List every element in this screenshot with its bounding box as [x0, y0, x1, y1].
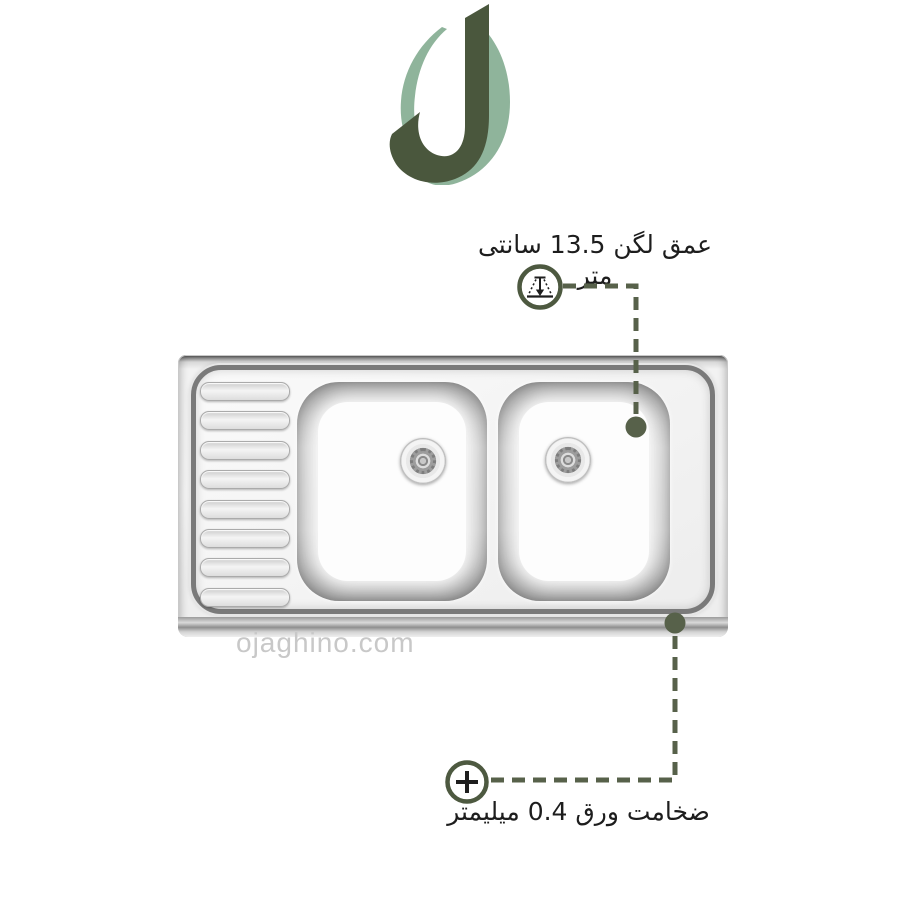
thickness-annotation-label: ضخامت ورق 0.4 میلیمتر [436, 796, 721, 827]
left-drain [400, 438, 446, 484]
brand-logo-icon [382, 3, 517, 185]
depth-annotation-label: عمق لگن 13.5 سانتی متر [470, 229, 720, 292]
left-bowl [297, 382, 487, 601]
right-bowl [498, 382, 670, 601]
thickness-connector-line [490, 636, 675, 780]
drainboard-ridge [200, 470, 290, 489]
sink-image [178, 355, 728, 637]
left-bowl-cavity [318, 402, 466, 581]
drainboard-ridge [200, 441, 290, 460]
drainboard-ridge [200, 558, 290, 577]
page: { "page": { "background": "#ffffff" }, "… [0, 0, 900, 900]
drainboard-ridge [200, 588, 290, 607]
right-bowl-cavity [519, 402, 649, 581]
right-drain [545, 437, 591, 483]
drainboard-ridge [200, 500, 290, 519]
drainboard-ridge [200, 382, 290, 401]
drainboard-ridge [200, 411, 290, 430]
drainboard-ridge [200, 529, 290, 548]
watermark: ojaghino.com [236, 627, 415, 659]
